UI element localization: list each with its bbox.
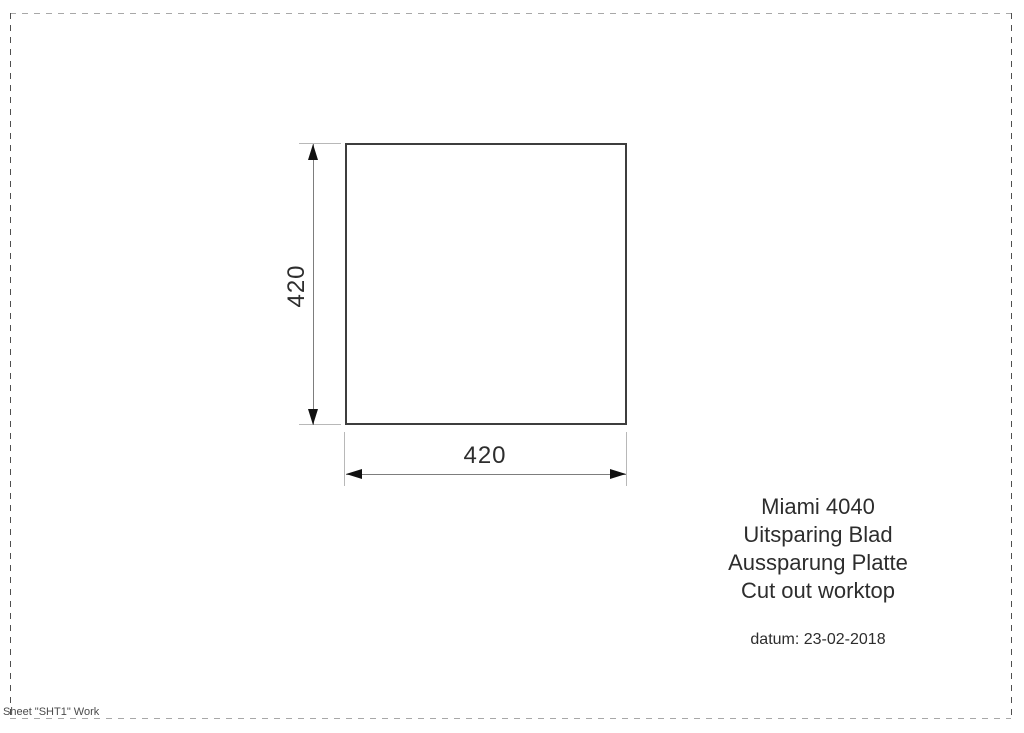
product-name: Miami 4040 [668,493,968,521]
cutout-rectangle [345,143,627,425]
drawing-sheet: 420 420 Miami 4040 Uitsparing Blad Aussp… [0,0,1024,733]
extension-line-bottom [299,424,341,425]
arrow-up-icon [308,144,318,160]
horizontal-dimension-line [346,474,626,475]
sheet-border-left [10,13,11,718]
title-block: Miami 4040 Uitsparing Blad Aussparung Pl… [668,493,968,605]
extension-line-left [344,432,345,486]
extension-line-top [299,143,341,144]
subtitle-german: Aussparung Platte [668,549,968,577]
sheet-footer-label: Sheet "SHT1" Work [3,706,99,719]
subtitle-english: Cut out worktop [668,577,968,605]
extension-line-right [626,432,627,486]
height-dimension-label: 420 [283,246,311,326]
date-label: datum: 23-02-2018 [668,630,968,650]
arrow-down-icon [308,409,318,425]
arrow-right-icon [610,469,626,479]
sheet-border-bottom [10,718,1011,719]
arrow-left-icon [346,469,362,479]
subtitle-dutch: Uitsparing Blad [668,521,968,549]
width-dimension-label: 420 [435,442,535,470]
vertical-dimension-line [313,144,314,425]
sheet-border-right [1011,13,1012,718]
sheet-border-top [10,13,1011,14]
